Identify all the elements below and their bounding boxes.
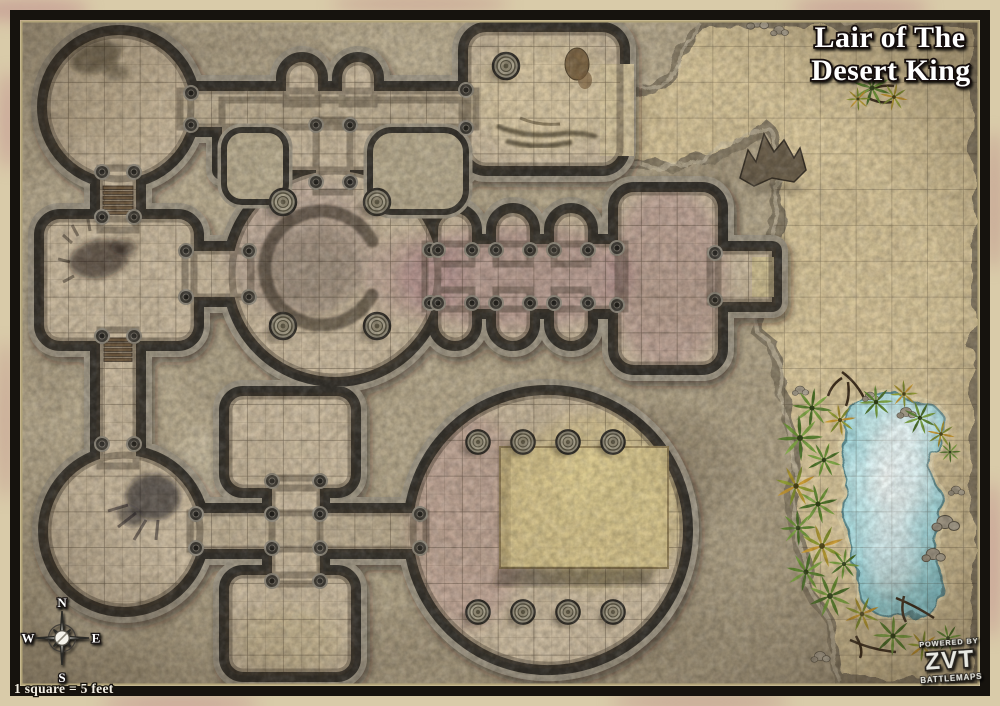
compass-north-label: N	[57, 595, 67, 610]
map-terrain	[22, 11, 978, 684]
vignette	[22, 22, 978, 684]
scale-label: 1 square = 5 feet	[14, 681, 114, 696]
compass-east-label: E	[92, 631, 101, 646]
battle-map-canvas: Lair of The Desert King N E S W 1 square…	[0, 0, 1000, 706]
map-image: Lair of The Desert King N E S W 1 square…	[0, 0, 1000, 706]
logo-brand: ZVT	[924, 645, 976, 675]
publisher-logo: POWERED BY ZVT BATTLEMAPS	[918, 636, 983, 685]
map-title: Lair of The Desert King	[811, 21, 971, 87]
title-line-2: Desert King	[811, 54, 971, 87]
compass-west-label: W	[22, 631, 35, 646]
title-line-1: Lair of The	[814, 21, 965, 54]
